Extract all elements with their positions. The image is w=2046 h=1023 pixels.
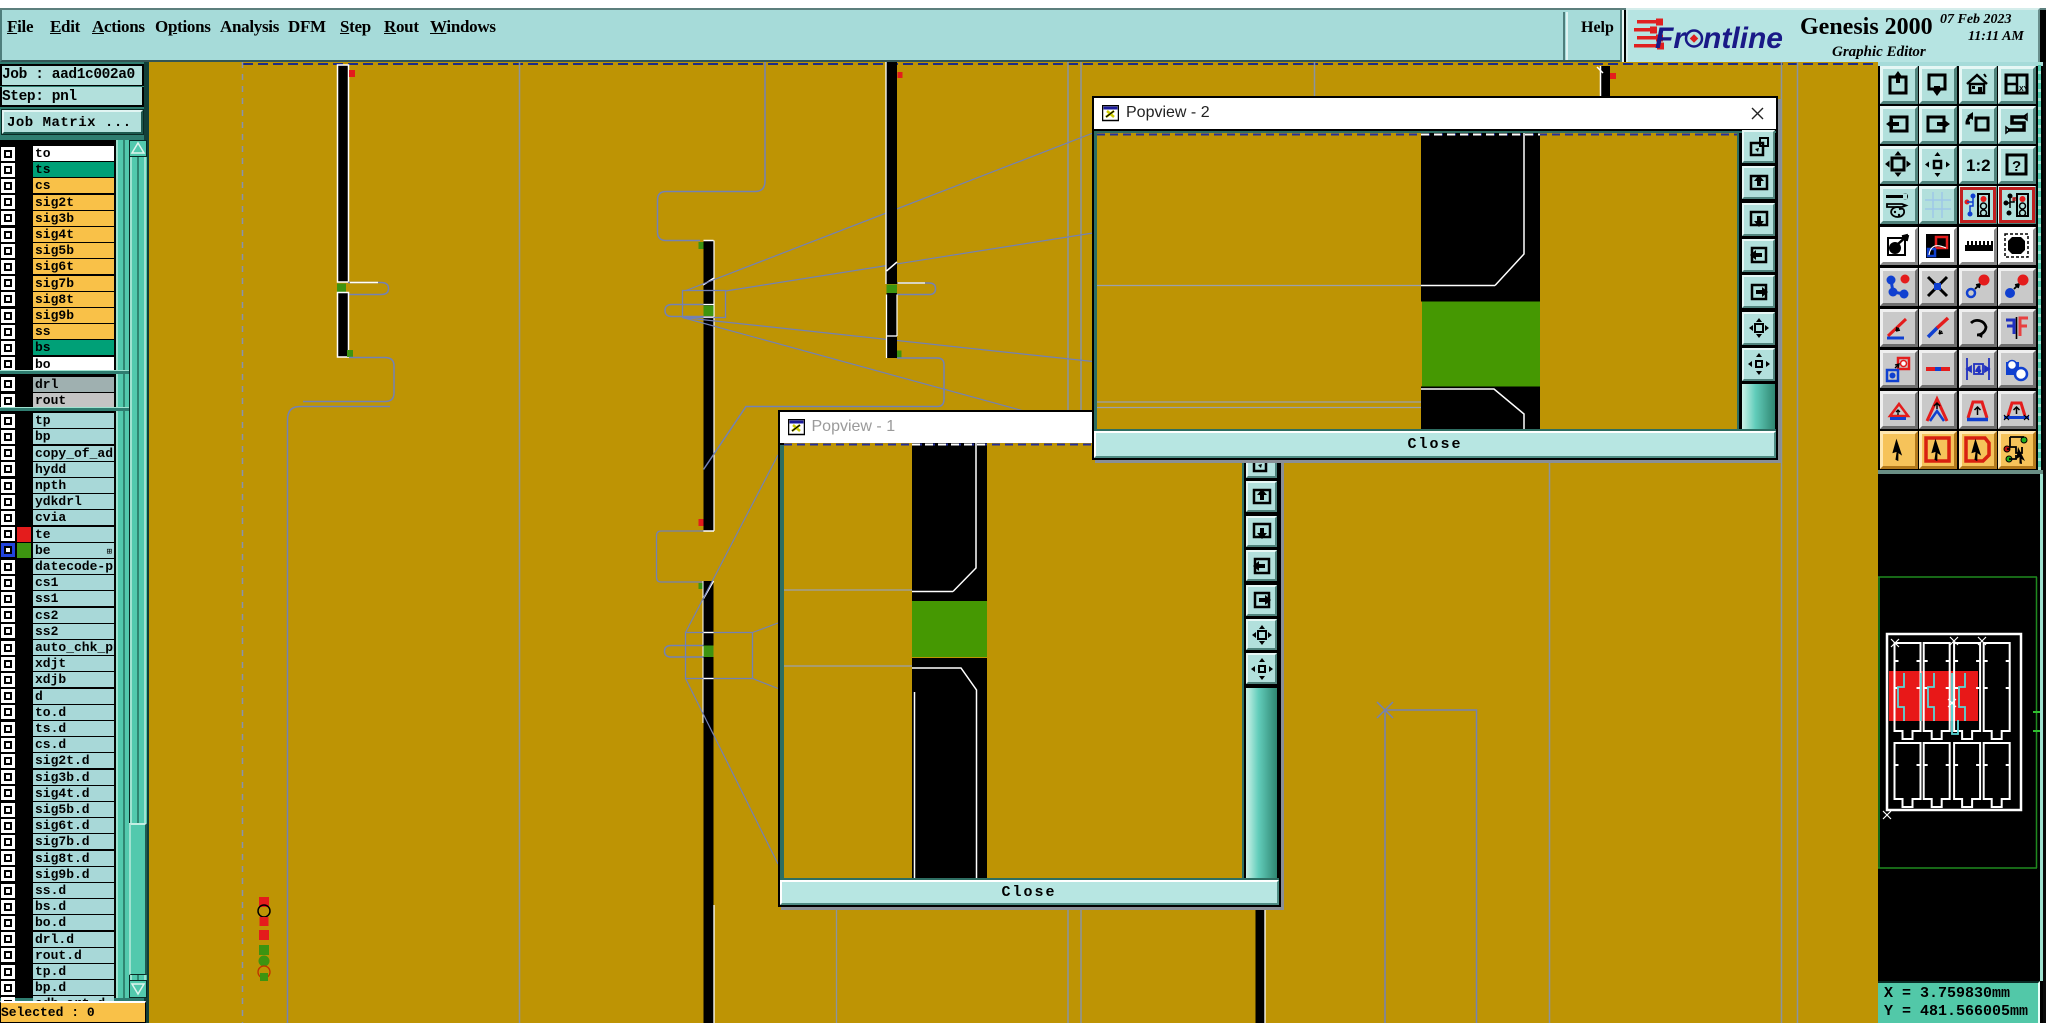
svg-text:Fr: Fr (1655, 22, 1687, 55)
svg-text:ntline: ntline (1703, 22, 1783, 55)
svg-text:?: ? (2012, 158, 2021, 175)
svg-text:XY: XY (2019, 86, 2029, 93)
svg-text:4: 4 (1976, 366, 1981, 375)
svg-text:1:2: 1:2 (1966, 156, 1991, 175)
